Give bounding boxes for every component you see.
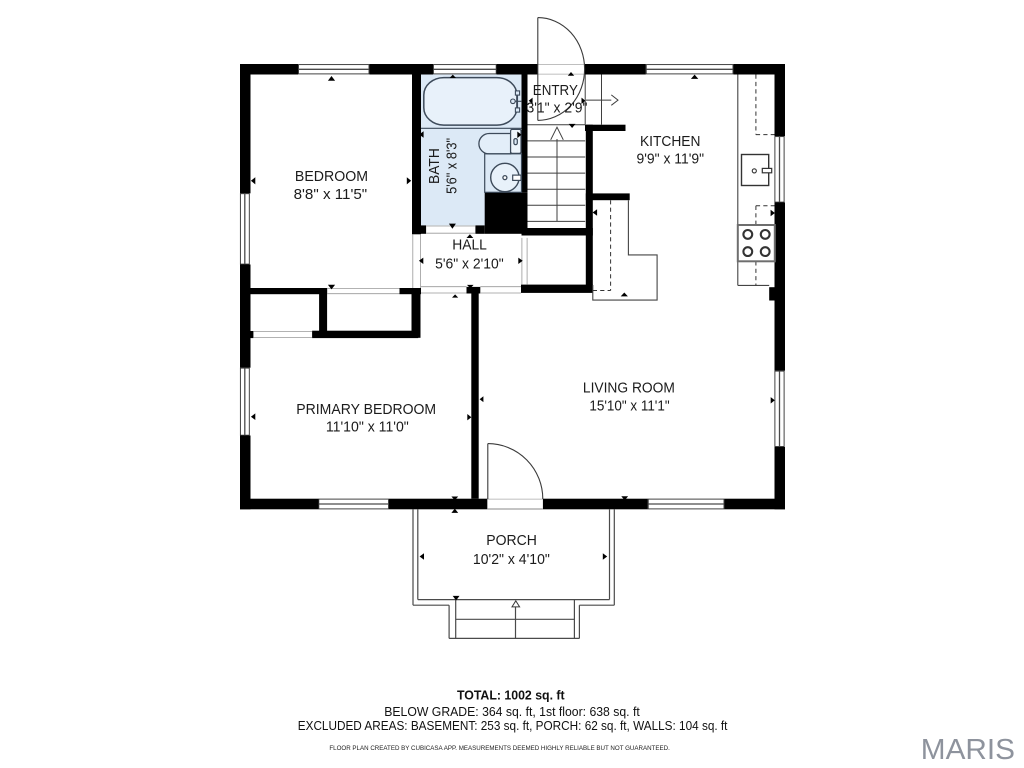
svg-text:LIVING ROOM: LIVING ROOM	[583, 379, 675, 396]
svg-text:BATH: BATH	[426, 148, 443, 184]
svg-text:EXCLUDED AREAS: BASEMENT: 253: EXCLUDED AREAS: BASEMENT: 253 sq. ft, PO…	[298, 718, 728, 733]
svg-text:ENTRY: ENTRY	[533, 82, 578, 99]
svg-text:3'1" x 2'9": 3'1" x 2'9"	[527, 99, 588, 116]
svg-text:TOTAL: 1002 sq. ft: TOTAL: 1002 sq. ft	[457, 687, 565, 702]
svg-text:PORCH: PORCH	[486, 532, 537, 549]
svg-text:5'6" x 2'10": 5'6" x 2'10"	[435, 256, 504, 273]
svg-text:FLOOR PLAN CREATED BY CUBICASA: FLOOR PLAN CREATED BY CUBICASA APP. MEAS…	[329, 745, 670, 752]
svg-text:MARIS: MARIS	[921, 734, 1015, 766]
svg-text:11'10" x 11'0": 11'10" x 11'0"	[326, 418, 409, 435]
svg-text:BEDROOM: BEDROOM	[295, 168, 368, 185]
svg-text:HALL: HALL	[452, 237, 487, 254]
svg-text:10'2" x 4'10": 10'2" x 4'10"	[473, 551, 550, 568]
svg-text:5'6" x 8'3": 5'6" x 8'3"	[443, 138, 460, 194]
svg-text:15'10" x 11'1": 15'10" x 11'1"	[589, 398, 669, 415]
svg-text:BELOW GRADE: 364 sq. ft, 1st f: BELOW GRADE: 364 sq. ft, 1st floor: 638 …	[384, 704, 640, 719]
svg-text:PRIMARY BEDROOM: PRIMARY BEDROOM	[296, 401, 436, 418]
svg-text:KITCHEN: KITCHEN	[640, 133, 701, 150]
svg-text:9'9" x 11'9": 9'9" x 11'9"	[636, 151, 704, 168]
svg-text:8'8" x 11'5": 8'8" x 11'5"	[294, 186, 368, 203]
